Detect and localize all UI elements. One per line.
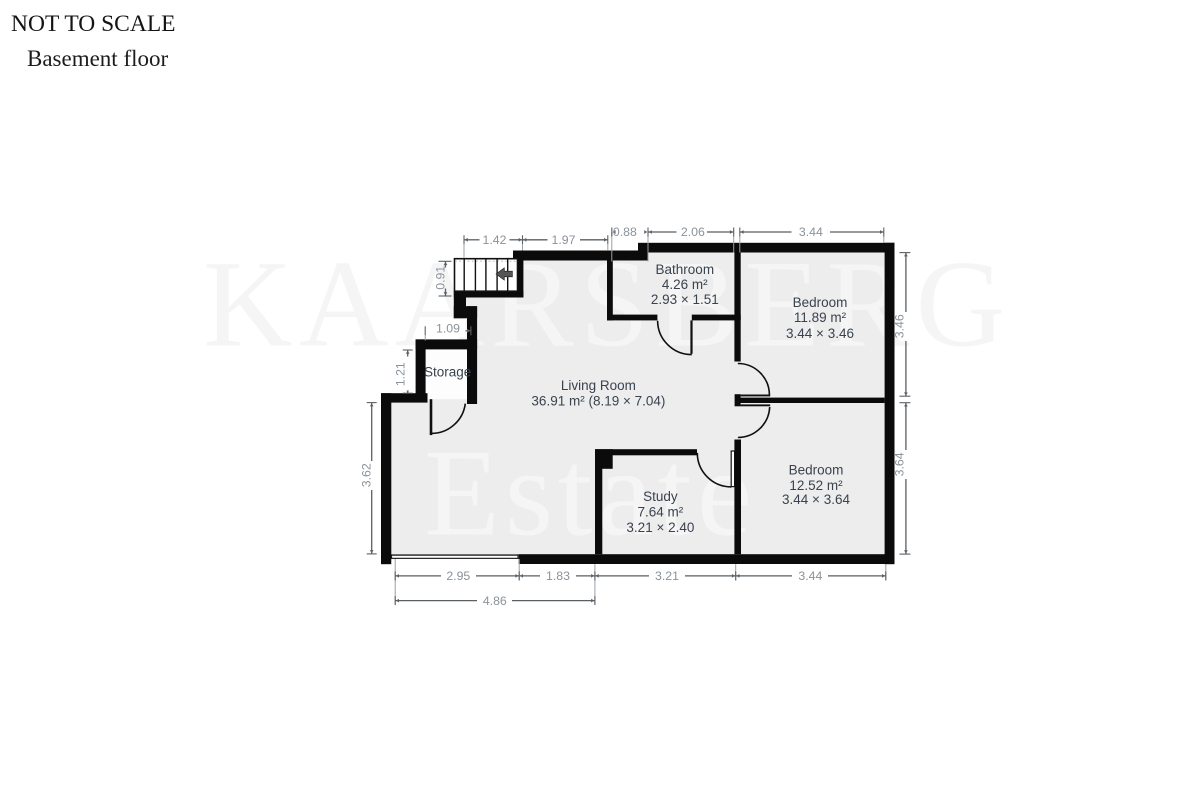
svg-text:2.93 × 1.51: 2.93 × 1.51 [651,292,719,307]
svg-text:Bedroom: Bedroom [793,295,848,310]
svg-text:4.26 m²: 4.26 m² [662,277,708,292]
svg-text:Bathroom: Bathroom [656,262,715,277]
svg-text:Living Room: Living Room [561,378,636,393]
svg-text:36.91 m² (8.19 × 7.04): 36.91 m² (8.19 × 7.04) [531,394,665,409]
svg-text:3.44 × 3.64: 3.44 × 3.64 [782,492,850,507]
svg-text:3.44: 3.44 [798,569,822,583]
svg-text:2.06: 2.06 [681,225,705,239]
svg-text:2.95: 2.95 [446,569,470,583]
svg-text:1.97: 1.97 [552,233,576,247]
svg-text:1.21: 1.21 [393,362,407,386]
svg-text:Storage: Storage [424,365,471,380]
svg-text:Study: Study [643,489,678,504]
svg-text:Estate: Estate [424,425,757,562]
svg-text:Basement floor: Basement floor [27,46,168,71]
svg-text:3.64: 3.64 [892,452,906,476]
svg-text:3.44 × 3.46: 3.44 × 3.46 [786,326,854,341]
svg-text:1.09: 1.09 [436,321,460,335]
svg-text:7.64 m²: 7.64 m² [638,505,684,520]
svg-text:1.42: 1.42 [483,233,507,247]
svg-text:0.91: 0.91 [433,266,447,290]
svg-text:11.89 m²: 11.89 m² [794,310,847,325]
svg-text:NOT TO SCALE: NOT TO SCALE [11,11,176,37]
svg-text:3.21: 3.21 [655,569,679,583]
svg-text:3.44: 3.44 [799,225,823,239]
svg-text:3.46: 3.46 [892,314,906,338]
svg-text:3.62: 3.62 [360,463,374,487]
svg-text:4.86: 4.86 [483,594,507,608]
svg-text:3.21 × 2.40: 3.21 × 2.40 [626,520,694,535]
svg-text:0.88: 0.88 [613,225,637,239]
svg-text:Bedroom: Bedroom [789,463,844,478]
svg-text:1.83: 1.83 [546,569,570,583]
